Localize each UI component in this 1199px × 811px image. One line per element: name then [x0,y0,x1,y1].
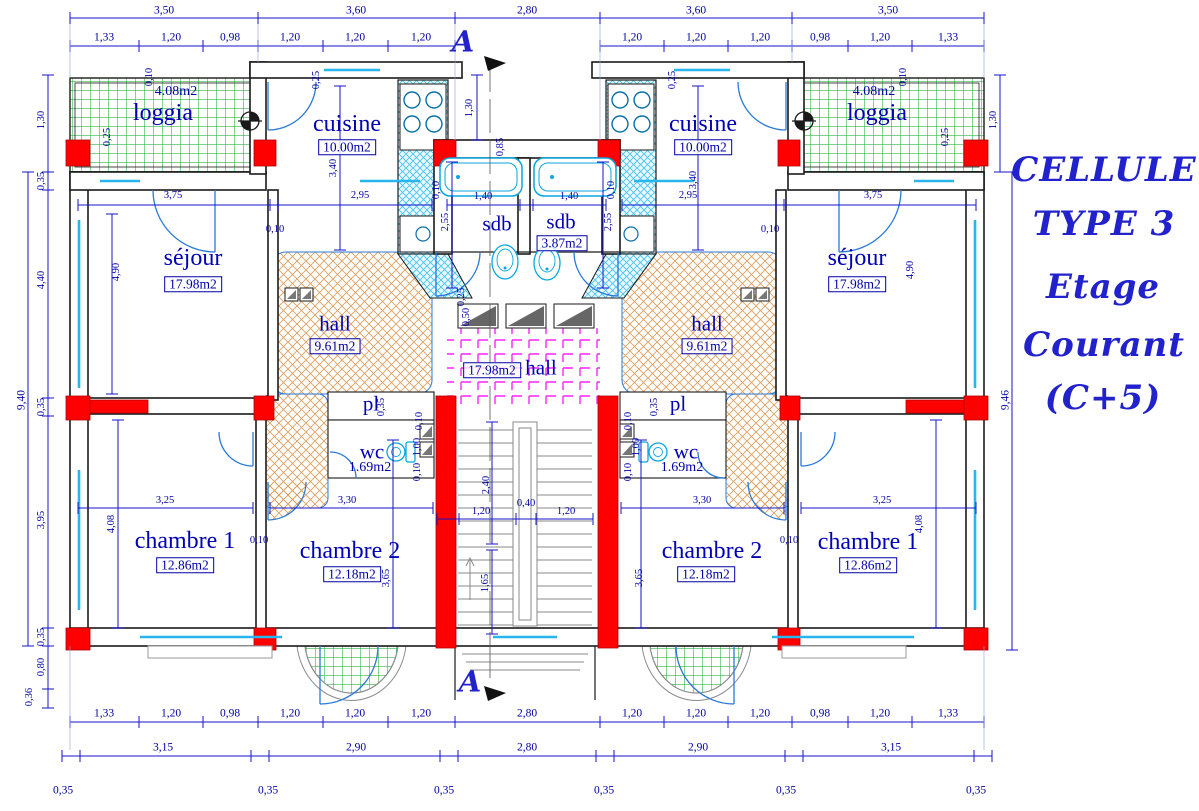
dim-label: 0,10 [266,225,284,236]
dim-label: 4,40 [37,271,48,289]
room-area-wc-left: 1.69m2 [349,461,391,475]
dim-label: 2,40 [482,476,493,494]
dim-label: 2,80 [517,742,537,754]
dim-label: 0,36 [25,688,36,706]
room-area-chambre2-right: 12.18m2 [677,566,735,582]
room-area-sejour-left: 17.98m2 [164,276,222,292]
entry-porch-left [297,646,406,701]
dim-label: 0,25 [941,128,952,146]
room-area-hall-center: 17.98m2 [463,362,521,378]
room-label-loggia-right: loggia [847,101,907,125]
dim-label: 0,98 [220,708,240,720]
dim-label: 0,35 [966,785,986,797]
dim-label: 0,10 [624,412,635,430]
room-label-sdb-left: sdb [482,214,511,235]
dim-label: 0,98 [220,32,240,44]
dim-label: 1,20 [161,708,181,720]
dim-label: 1,20 [622,708,642,720]
room-label-loggia-left: loggia [133,101,193,125]
room-label-sejour-left: séjour [164,246,223,270]
room-label-sejour-right: séjour [828,246,887,270]
dim-label: 3,25 [156,496,174,507]
dim-label: 0,10 [415,412,426,430]
dim-label: 0,35 [37,398,48,416]
dim-label: 2,95 [679,191,697,202]
dim-label: 3,60 [346,5,366,17]
dim-label: 0,35 [377,398,388,416]
room-area-loggia-right: 4.08m2 [853,85,895,99]
dim-label: 0,10 [607,181,618,199]
dim-label: 1,20 [411,708,431,720]
dim-label: 0,40 [517,499,535,510]
dim-label: 1,20 [686,32,706,44]
dim-label: 0,35 [434,785,454,797]
dim-label: 1,20 [622,32,642,44]
dim-label: 1,20 [280,32,300,44]
dim-label: 0,35 [37,172,48,190]
dim-label: 3,75 [864,191,882,202]
section-arrow-top [484,56,506,71]
dim-label: 1,20 [345,708,365,720]
room-label-hall-center: hall [525,358,557,379]
room-label-sdb-right: sdb [546,212,575,233]
dim-label: 1,20 [750,32,770,44]
dim-label: 0,35 [594,785,614,797]
door-cuisine-right [738,82,786,130]
dim-label: 3,30 [693,496,711,507]
room-area-hall-right: 9.61m2 [682,338,733,354]
washbasin-right [534,246,560,280]
dim-label: 0,25 [457,288,468,306]
wall-segment [256,416,266,630]
title-line-5: (C+5) [1045,381,1161,415]
dim-label: 3,75 [164,191,182,202]
room-label-chambre2-right: chambre 2 [662,539,763,563]
dim-label: 0,25 [668,71,679,89]
toilet-right [639,442,667,462]
dim-label: 1,20 [870,32,890,44]
dim-label: 0,10 [413,463,424,481]
dim-label: 2,90 [688,742,708,754]
room-area-cuisine-left: 10.00m2 [318,139,376,155]
dim-label: 3,50 [154,5,174,17]
dim-label: 1,20 [280,708,300,720]
dim-label: 9,40 [16,390,28,410]
dim-label: 3,40 [329,159,340,177]
room-label-cuisine-right: cuisine [669,112,737,136]
dim-label: 0,10 [899,68,910,86]
dim-label: 1,40 [560,192,578,203]
dim-label: 0,25 [103,128,114,146]
dim-label: 0,98 [810,708,830,720]
washbasin-left [492,245,518,279]
room-label-hall-left: hall [319,314,351,335]
dim-label: 0,10 [145,68,156,86]
dim-label: 0,50 [462,308,473,326]
window-sills [148,646,906,658]
dim-label: 1,20 [345,32,365,44]
room-label-cuisine-left: cuisine [313,112,381,136]
title-line-3: Etage [1046,270,1160,304]
dim-label: 1,20 [472,507,490,518]
dim-label: 1,20 [557,507,575,518]
dim-label: 0,85 [496,138,507,156]
floor-plan-page: loggia 4.08m2 loggia 4.08m2 cuisine 10.0… [0,0,1199,811]
dim-label: 4,90 [906,261,917,279]
wall-segment [70,172,266,190]
room-area-sejour-right: 17.98m2 [828,276,886,292]
dim-label: 1,20 [161,32,181,44]
dim-label: 1,40 [474,192,492,203]
dim-label: 3,95 [37,511,48,529]
door-chambre1-right [801,432,835,466]
wall-segment [268,190,278,400]
dim-label: 0,10 [624,463,635,481]
dim-label: 3,40 [689,171,700,189]
dim-label: 2,80 [517,5,537,17]
room-area-loggia-left: 4.08m2 [155,85,197,99]
dim-label: 0,35 [37,628,48,646]
title-line-1: CELLULE [1011,153,1196,187]
dim-label: 4,08 [107,515,118,533]
dim-label: 1,20 [870,708,890,720]
title-line-2: TYPE 3 [1033,207,1176,241]
dim-label: 3,15 [153,742,173,754]
dim-label: 0,10 [780,536,798,547]
door-chambre1-left [219,432,253,466]
section-marker-a-top: A [452,28,475,57]
dim-label: 1,30 [465,99,476,117]
dim-label: 1,33 [94,708,114,720]
dim-label: 0,10 [432,181,443,199]
wall-segment [788,416,798,630]
dim-label: 2,95 [351,191,369,202]
room-label-chambre1-right: chambre 1 [818,530,919,554]
dim-label: 2,80 [517,708,537,720]
dim-label: 1,33 [938,708,958,720]
dim-label: 3,65 [635,569,646,587]
dim-label: 3,65 [382,569,393,587]
section-arrow-bottom [484,686,506,701]
dim-label: 0,35 [650,398,661,416]
dim-label: 0,25 [312,71,323,89]
dim-label: 3,25 [873,496,891,507]
dim-label: 3,15 [881,742,901,754]
dim-label: 1,20 [411,32,431,44]
room-area-cuisine-right: 10.00m2 [674,139,732,155]
dim-label: 0,35 [53,785,73,797]
room-label-hall-right: hall [691,314,723,335]
dim-label: 1,65 [481,574,492,592]
room-label-pl-right: pl [670,394,686,415]
door-cuisine-left [268,82,316,130]
dim-label: 1,30 [37,111,48,129]
dim-label: 0,10 [250,536,268,547]
wall-segment [434,140,620,158]
wall-segment [788,172,984,190]
room-area-sdb-right: 3.87m2 [537,235,588,251]
dim-label: 1,20 [686,708,706,720]
dim-label: 0,10 [761,225,779,236]
dim-label: 4,90 [112,263,123,281]
room-label-chambre2-left: chambre 2 [300,539,401,563]
room-label-chambre1-left: chambre 1 [135,529,236,553]
dim-label: 2,90 [346,742,366,754]
dim-label: 4,08 [915,515,926,533]
dim-label: 1,00 [413,438,424,456]
dim-label: 3,30 [338,496,356,507]
title-line-4: Courant [1023,328,1185,362]
dim-label: 1,30 [989,111,1000,129]
dim-label: 0,35 [776,785,796,797]
dim-label: 3,50 [878,5,898,17]
room-area-chambre1-right: 12.86m2 [839,557,897,573]
dim-label: 0,35 [258,785,278,797]
dim-label: 2,55 [604,213,615,231]
wall-segment [776,190,786,400]
dim-label: 1,00 [632,438,643,456]
room-area-wc-right: 1.69m2 [661,461,703,475]
dim-label: 9,46 [1000,390,1012,410]
room-area-hall-left: 9.61m2 [310,338,361,354]
room-area-chambre2-left: 12.18m2 [323,566,381,582]
section-marker-a-bottom: A [459,668,482,697]
dim-label: 0,98 [810,32,830,44]
room-area-chambre1-left: 12.86m2 [156,557,214,573]
dim-label: 2,55 [441,213,452,231]
door-sejour-left [153,190,215,252]
dim-label: 1,33 [94,32,114,44]
dim-label: 1,33 [938,32,958,44]
dim-label: 3,60 [686,5,706,17]
dim-label: 0,80 [37,658,48,676]
dim-label: 1,20 [750,708,770,720]
